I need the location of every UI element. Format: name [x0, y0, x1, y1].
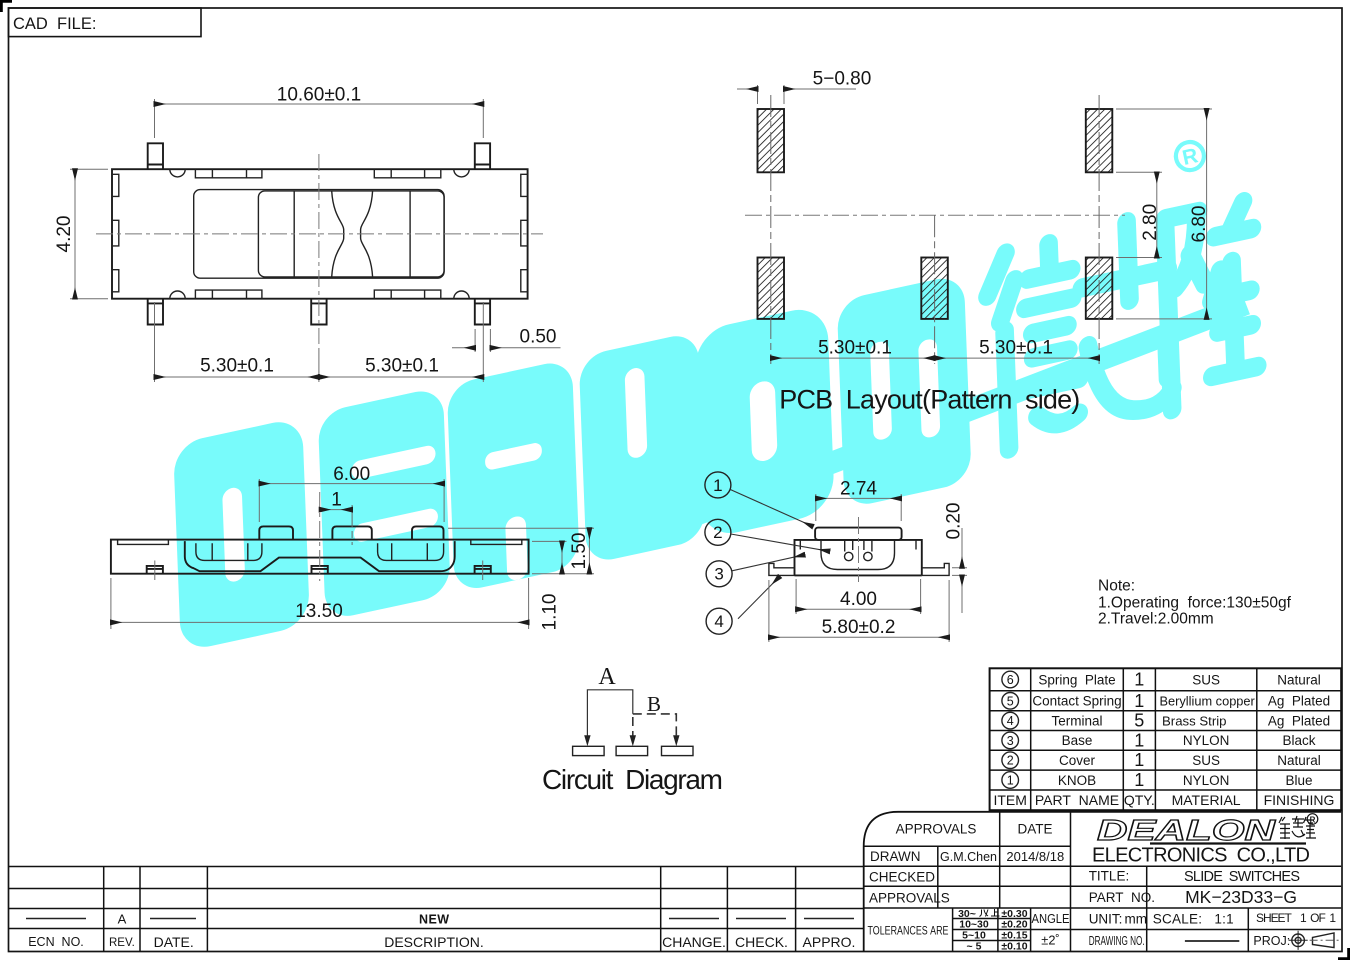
svg-text:Cover: Cover	[1059, 753, 1096, 768]
svg-text:5.30±0.1: 5.30±0.1	[365, 356, 439, 377]
svg-text:2: 2	[713, 523, 722, 542]
svg-text:UNIT:: UNIT:	[1089, 912, 1123, 927]
svg-text:MATERIAL: MATERIAL	[1172, 792, 1241, 808]
svg-text:NEW: NEW	[419, 913, 449, 927]
svg-text:SUS: SUS	[1192, 672, 1220, 687]
svg-text:APPROVALS: APPROVALS	[869, 891, 950, 906]
svg-text:4.20: 4.20	[54, 216, 75, 253]
svg-text:PART NAME: PART NAME	[1035, 792, 1119, 808]
svg-text:0.50: 0.50	[520, 327, 557, 348]
svg-text:4: 4	[714, 612, 723, 631]
svg-text:Ag Plated: Ag Plated	[1268, 694, 1330, 709]
svg-text:PART NO.: PART NO.	[1089, 890, 1155, 905]
svg-text:Black: Black	[1282, 733, 1315, 748]
svg-text:R: R	[1310, 816, 1316, 825]
svg-text:5.30±0.1: 5.30±0.1	[818, 338, 892, 359]
svg-text:Ag Plated: Ag Plated	[1268, 713, 1330, 728]
svg-text:5.80±0.2: 5.80±0.2	[822, 617, 896, 638]
svg-text:Spring Plate: Spring Plate	[1038, 672, 1115, 687]
svg-text:Note:: Note:	[1098, 578, 1135, 595]
svg-text:2.74: 2.74	[840, 478, 877, 499]
svg-text:Beryllium copper: Beryllium copper	[1160, 694, 1256, 709]
svg-text:Brass Strip: Brass Strip	[1162, 713, 1227, 728]
svg-text:5.30±0.1: 5.30±0.1	[979, 338, 1053, 359]
svg-text:MK−23D33−G: MK−23D33−G	[1185, 887, 1297, 907]
svg-text:2: 2	[1007, 754, 1014, 768]
svg-text:DATE: DATE	[1017, 822, 1052, 837]
svg-text:5: 5	[1134, 711, 1144, 731]
svg-text:PROJ:: PROJ:	[1253, 934, 1290, 948]
svg-text:3: 3	[714, 565, 723, 584]
svg-text:Natural: Natural	[1277, 753, 1321, 768]
svg-text:A: A	[598, 664, 616, 690]
svg-text:Circuit Diagram: Circuit Diagram	[542, 764, 723, 795]
svg-text:TOLERANCES ARE: TOLERANCES ARE	[868, 924, 949, 938]
svg-text:REV.: REV.	[109, 937, 135, 949]
svg-text:3: 3	[1007, 734, 1014, 748]
svg-text:CHECK.: CHECK.	[735, 934, 788, 950]
svg-text:Natural: Natural	[1277, 672, 1321, 687]
svg-text:1: 1	[1134, 691, 1144, 711]
svg-text:5: 5	[1007, 694, 1014, 708]
svg-text:4: 4	[1007, 714, 1014, 728]
svg-text:SHEET 1 OF 1: SHEET 1 OF 1	[1256, 911, 1336, 925]
svg-text:KNOB: KNOB	[1058, 773, 1096, 788]
svg-text:Contact Spring: Contact Spring	[1032, 694, 1121, 709]
svg-text:DRAWN: DRAWN	[870, 849, 921, 864]
svg-text:B: B	[647, 692, 661, 716]
svg-text:6.80: 6.80	[1189, 206, 1210, 243]
svg-text:TITLE:: TITLE:	[1089, 869, 1130, 884]
svg-text:QTY.: QTY.	[1124, 792, 1155, 808]
svg-text:SLIDE SWITCHES: SLIDE SWITCHES	[1184, 869, 1300, 885]
svg-text:5−0.80: 5−0.80	[813, 69, 872, 90]
svg-text:DATE.: DATE.	[154, 934, 194, 950]
svg-text:6: 6	[1007, 673, 1014, 687]
svg-text:SCALE: 1:1: SCALE: 1:1	[1153, 912, 1234, 927]
svg-text:1: 1	[1134, 730, 1144, 750]
svg-text:1: 1	[1007, 774, 1014, 788]
svg-text:2.80: 2.80	[1140, 204, 1161, 241]
svg-text:0.20: 0.20	[944, 503, 965, 540]
svg-text:±2˚: ±2˚	[1041, 933, 1059, 948]
svg-text:±0.10: ±0.10	[1001, 941, 1027, 953]
svg-text:Blue: Blue	[1285, 773, 1312, 788]
svg-text:APPROVALS: APPROVALS	[896, 822, 977, 837]
svg-text:1.10: 1.10	[540, 594, 561, 631]
svg-text:DRAWING NO.: DRAWING NO.	[1089, 934, 1145, 948]
svg-text:1.Operating force:130±50gf: 1.Operating force:130±50gf	[1098, 595, 1292, 612]
svg-text:2014/8/18: 2014/8/18	[1006, 849, 1064, 864]
svg-text:PCB Layout(Pattern side): PCB Layout(Pattern side)	[779, 385, 1080, 415]
svg-text:FINISHING: FINISHING	[1264, 792, 1335, 808]
svg-text:Base: Base	[1062, 733, 1093, 748]
svg-text:2.Travel:2.00mm: 2.Travel:2.00mm	[1098, 611, 1214, 628]
svg-text:ECN NO.: ECN NO.	[28, 935, 84, 949]
svg-text:13.50: 13.50	[295, 601, 343, 622]
svg-text:CHECKED: CHECKED	[869, 870, 935, 885]
svg-text:1: 1	[1134, 750, 1144, 770]
svg-text:1: 1	[1134, 670, 1144, 690]
svg-text:APPRO.: APPRO.	[803, 934, 856, 950]
svg-text:~ 5: ~ 5	[967, 941, 982, 953]
svg-text:ANGLE: ANGLE	[1032, 911, 1070, 926]
svg-text:1: 1	[1134, 770, 1144, 790]
svg-text:SUS: SUS	[1192, 753, 1220, 768]
svg-text:NYLON: NYLON	[1183, 733, 1230, 748]
svg-text:DEALON: DEALON	[1097, 815, 1277, 847]
svg-text:ELECTRONICS CO.,LTD: ELECTRONICS CO.,LTD	[1092, 845, 1310, 867]
svg-text:CHANGE.: CHANGE.	[662, 934, 726, 950]
svg-text:5.30±0.1: 5.30±0.1	[200, 356, 274, 377]
svg-text:1: 1	[331, 489, 342, 510]
svg-text:DESCRIPTION.: DESCRIPTION.	[384, 934, 484, 950]
svg-text:10.60±0.1: 10.60±0.1	[277, 85, 361, 106]
svg-text:1: 1	[713, 476, 722, 495]
svg-text:CAD FILE:: CAD FILE:	[13, 15, 96, 33]
svg-text:ITEM: ITEM	[993, 792, 1026, 808]
svg-text:4.00: 4.00	[840, 589, 877, 610]
svg-text:G.M.Chen: G.M.Chen	[940, 850, 997, 864]
svg-text:1.50: 1.50	[569, 533, 590, 570]
svg-text:Terminal: Terminal	[1051, 713, 1102, 728]
svg-text:NYLON: NYLON	[1183, 773, 1230, 788]
svg-text:6.00: 6.00	[333, 464, 370, 485]
svg-text:A: A	[118, 912, 127, 927]
svg-text:mm: mm	[1125, 912, 1148, 927]
